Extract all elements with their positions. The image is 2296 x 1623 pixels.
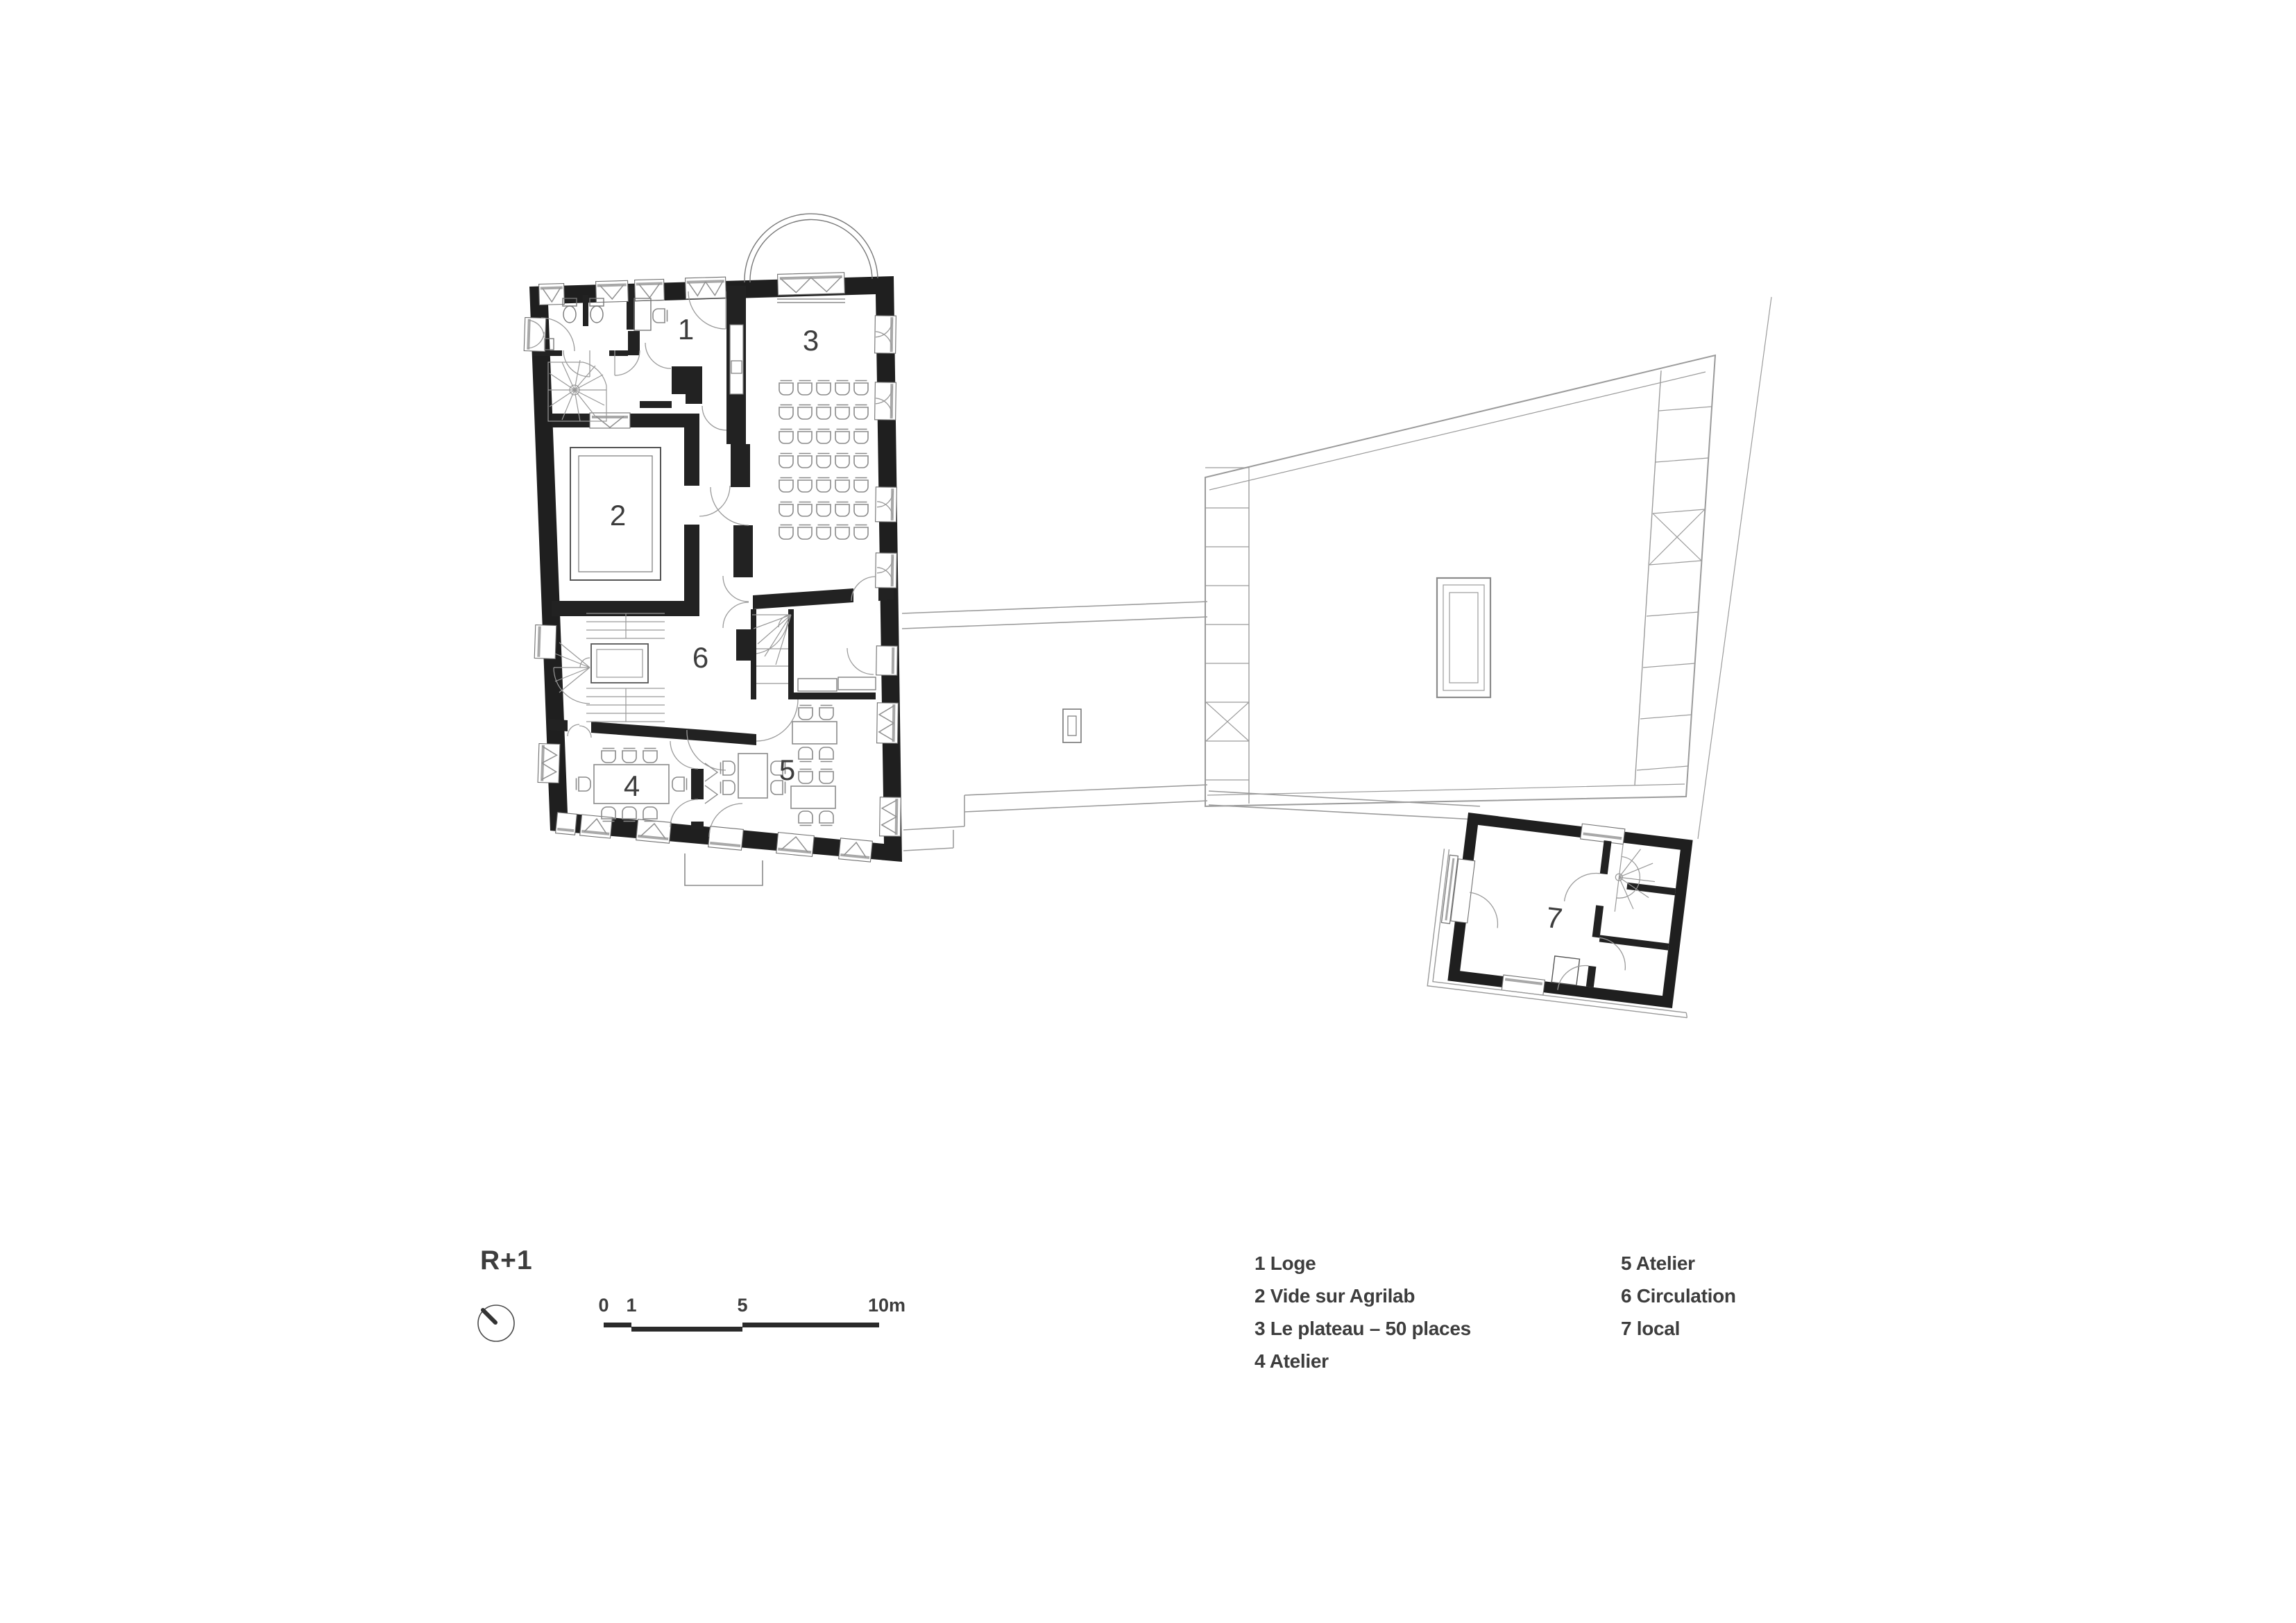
room-label-4: 4 <box>624 770 640 802</box>
north-arrow-icon <box>475 1302 519 1346</box>
wc-fixtures <box>545 298 604 350</box>
floor-plan-sheet: 7 1 2 3 4 5 6 R+1 0 1 5 10m 1 Loge 2 Vid… <box>0 0 2296 1623</box>
door-arcs <box>541 291 876 837</box>
storage-bench <box>798 677 876 691</box>
room3-board <box>777 299 845 303</box>
terrace <box>902 602 1480 851</box>
legend-column-2: 5 Atelier 6 Circulation 7 local <box>1621 1247 1736 1345</box>
duct-niche <box>730 325 743 394</box>
scale-segment <box>604 1323 631 1327</box>
legend-item: 7 local <box>1621 1312 1736 1345</box>
balcony <box>685 853 763 885</box>
drawing-title: R+1 <box>480 1246 533 1276</box>
legend-item: 3 Le plateau – 50 places <box>1255 1312 1471 1345</box>
winder-stair-center <box>752 615 791 683</box>
legend-item: 1 Loge <box>1255 1247 1471 1280</box>
room-label-7: 7 <box>1545 901 1564 935</box>
annex-building: 7 <box>1427 808 1709 1018</box>
room1-desk <box>634 298 667 330</box>
room-label-5: 5 <box>779 754 794 786</box>
spiral-stair-northwest <box>548 360 606 421</box>
floor-plan-drawing: 7 1 2 3 4 5 6 <box>0 0 2296 1623</box>
main-stair-and-lift <box>554 613 665 722</box>
apse <box>745 214 878 282</box>
room3-chairs <box>779 381 868 540</box>
annex-walls <box>1447 813 1692 1008</box>
scale-tick-1: 1 <box>626 1295 636 1316</box>
legend-item: 5 Atelier <box>1621 1247 1736 1280</box>
scale-segment <box>742 1323 879 1327</box>
room-label-2: 2 <box>610 499 625 532</box>
annex-wc <box>1551 956 1579 985</box>
room5-furniture <box>705 706 837 826</box>
room-label-6: 6 <box>692 641 708 674</box>
scale-tick-10: 10m <box>868 1295 905 1316</box>
legend-item: 2 Vide sur Agrilab <box>1255 1280 1471 1312</box>
windows <box>524 273 901 862</box>
room-label-3: 3 <box>803 324 818 357</box>
main-building <box>524 214 902 885</box>
scale-tick-5: 5 <box>737 1295 747 1316</box>
interior-walls <box>533 286 894 830</box>
annex-spiral-stair <box>1611 844 1659 916</box>
legend-item: 6 Circulation <box>1621 1280 1736 1312</box>
scale-segment <box>631 1327 742 1332</box>
room-label-1: 1 <box>678 313 693 346</box>
legend-column-1: 1 Loge 2 Vide sur Agrilab 3 Le plateau –… <box>1255 1247 1471 1377</box>
east-roof <box>1205 297 1771 839</box>
legend-item: 4 Atelier <box>1255 1345 1471 1377</box>
scale-tick-0: 0 <box>598 1295 609 1316</box>
